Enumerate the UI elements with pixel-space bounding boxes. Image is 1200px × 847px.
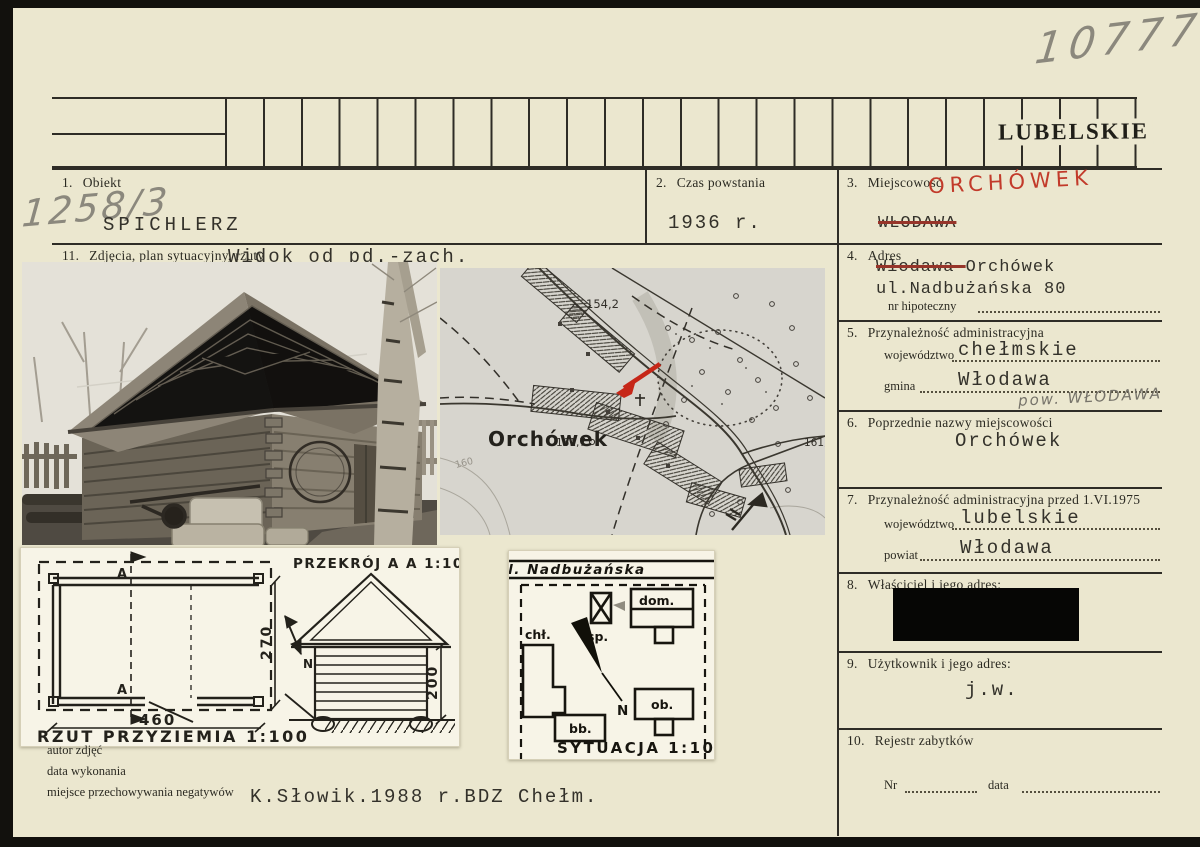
site-street-label: ul. Nadbużańska: [509, 562, 646, 578]
site-chl-label: chł.: [525, 627, 551, 642]
section-dim-height: 200: [425, 665, 441, 700]
scan-edge-bottom: [0, 837, 1200, 847]
map-town-label: Orchówek: [488, 427, 608, 451]
field10-nr-line: [905, 791, 977, 793]
site-dom-label: dom.: [639, 593, 674, 608]
field9-label: 9.Użytkownik i jego adres:: [847, 656, 1011, 672]
site-title: SYTUACJA 1:1000: [557, 739, 714, 757]
field5-woj-line: [952, 360, 1160, 362]
plan-section-mark-top: A: [117, 567, 127, 582]
field5-gmina-value: Włodawa: [958, 369, 1052, 391]
field10-label: 10.Rejestr zabytków: [847, 733, 974, 749]
field5-gmina-label: gmina: [884, 379, 915, 394]
site-building-sp: [591, 593, 611, 623]
map-photo: 154,2 161,7 161,5 160 Orchówek: [440, 268, 825, 535]
footer-date-label: data wykonania: [47, 764, 126, 779]
field10-data-line: [1022, 791, 1160, 793]
field7-label: 7.Przynależność administracyjna przed 1.…: [847, 492, 1140, 508]
field2-label: 2.Czas powstania: [656, 175, 765, 191]
site-building-chl: [523, 645, 565, 717]
field6-label: 6.Poprzednie nazwy miejscowości: [847, 415, 1053, 431]
site-plan-card: ul. Nadbużańska sp. dom. chł. bb. ob.: [508, 550, 715, 760]
map-spot-height-3: 161,5: [804, 437, 825, 449]
field7-woj-value: lubelskie: [960, 507, 1081, 529]
field6-value: Orchówek: [955, 430, 1062, 452]
scan-edge-left: [0, 0, 13, 847]
field7-powiat-label: powiat: [884, 548, 918, 563]
plan-section-mark-bottom: A: [117, 683, 127, 698]
drawings-card: A A 460 270 N RZUT PRZYZIEMIA 1:100 PRZE…: [20, 547, 460, 747]
site-building-ob: [635, 689, 693, 735]
header-strip-midline: [52, 133, 225, 135]
field3-red-handwriting: ORCHÓWEK: [927, 166, 1093, 199]
field7-woj-label: województwo: [884, 517, 954, 532]
site-north-label: N: [617, 703, 628, 719]
map-spot-height-1: 154,2: [586, 297, 619, 311]
field4-hip-label: nr hipoteczny: [888, 299, 956, 314]
field7-powiat-value: Włodawa: [960, 537, 1054, 559]
voivodeship-stamp: LUBELSKIE: [994, 118, 1153, 145]
field9-value: j.w.: [965, 679, 1019, 701]
footer-negatives-label: miejsce przechowywania negatywów: [47, 785, 234, 800]
building-photo: [22, 262, 437, 545]
field2-value: 1936 r.: [668, 212, 762, 234]
field5-woj-label: województwo: [884, 348, 954, 363]
plan-north-label: N: [303, 657, 313, 671]
field4-line1: Włodawa-Orchówek: [876, 258, 1055, 277]
field8-redaction-box: [893, 588, 1079, 641]
field4-hip-line: [978, 311, 1160, 313]
field3-crossed-value: WŁODAWA: [878, 214, 956, 233]
section-ground-hatch: [325, 720, 455, 733]
field10-data-label: data: [988, 778, 1009, 793]
section-drawing: PRZEKRÓJ A A 1:100 20: [285, 554, 459, 733]
field7-woj-line: [952, 528, 1160, 530]
site-ob-label: ob.: [651, 697, 673, 712]
field1-value: SPICHLERZ: [103, 214, 242, 236]
field4-line2: ul.Nadbużańska 80: [876, 280, 1066, 299]
scan-edge-top: [0, 0, 1200, 8]
site-sp-pointer: [613, 601, 625, 611]
footer-credit: K.Słowik.1988 r.BDZ Chełm.: [250, 786, 598, 808]
field7-powiat-line: [920, 559, 1160, 561]
section-title: PRZEKRÓJ A A 1:100: [293, 554, 459, 572]
plan-dim-height: 270: [259, 625, 275, 660]
inventory-number-handwritten: 10777: [1033, 3, 1200, 74]
footer-author-label: autor zdjęć: [47, 743, 102, 758]
site-bb-label: bb.: [569, 721, 592, 736]
field10-nr-label: Nr: [884, 778, 897, 793]
record-card-scan: 10777 LUBELSKIE 1.Obiekt 1258/3 SPICHLER…: [0, 0, 1200, 847]
field5-woj-value: chełmskie: [958, 339, 1079, 361]
